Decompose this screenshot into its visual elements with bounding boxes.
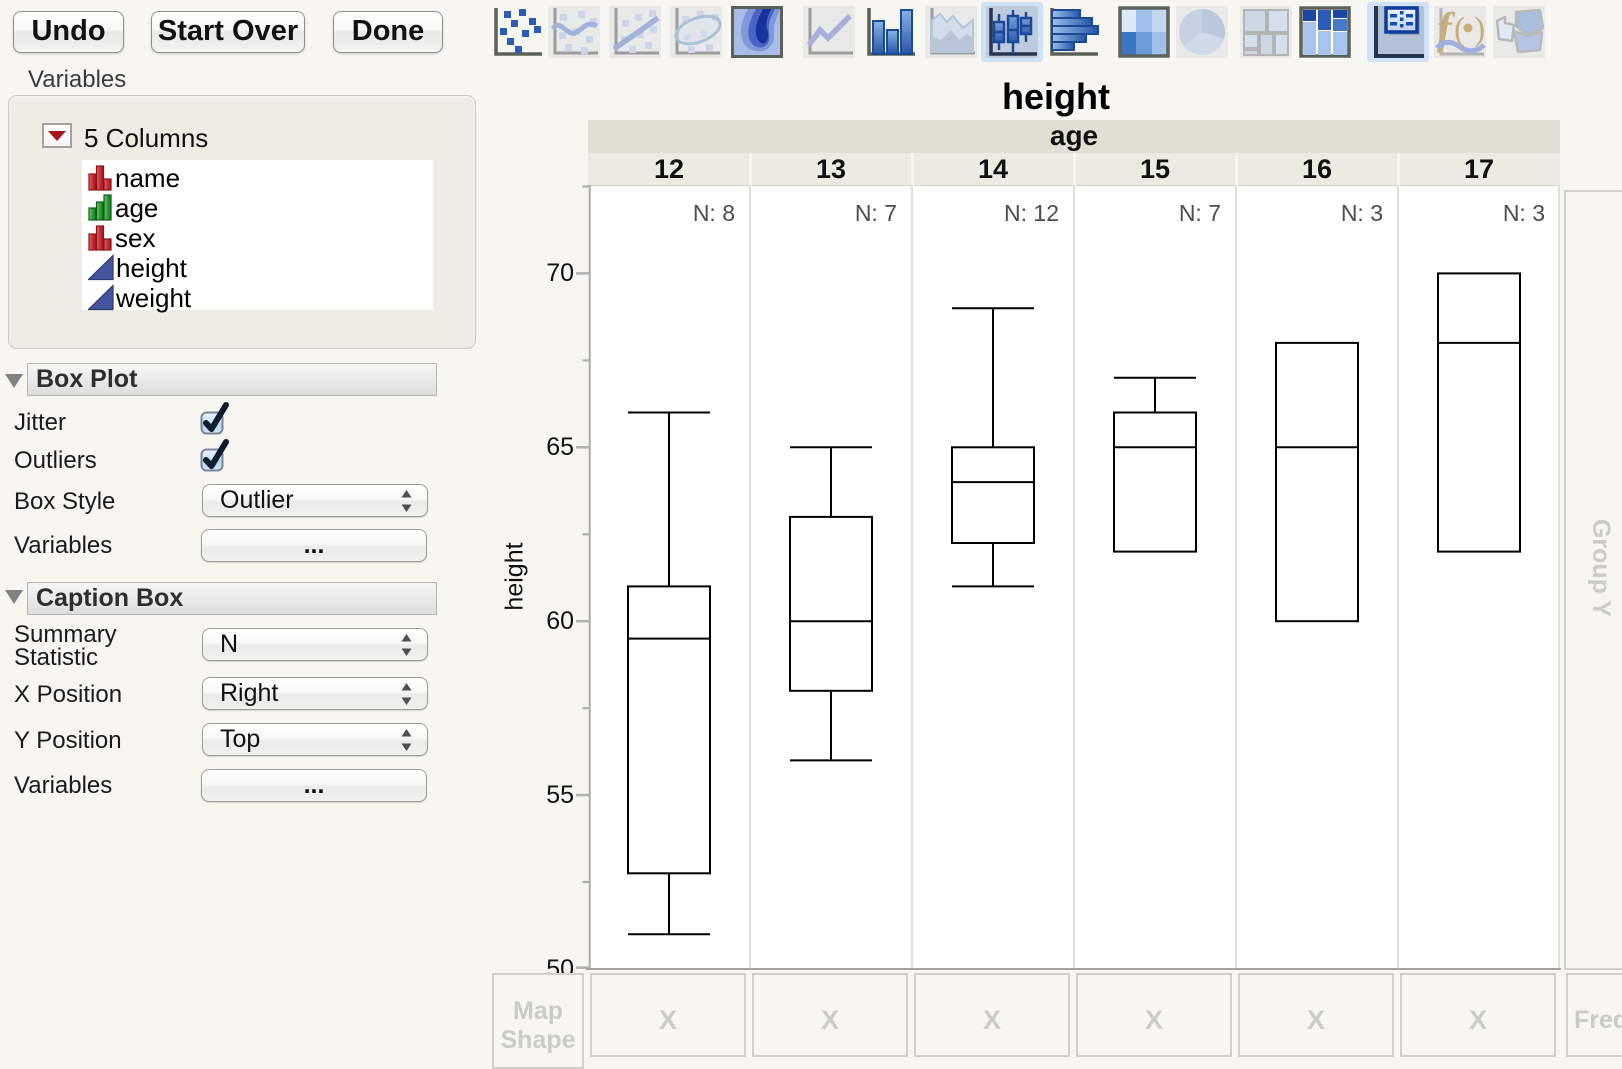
svg-text:): ) bbox=[1474, 11, 1485, 48]
